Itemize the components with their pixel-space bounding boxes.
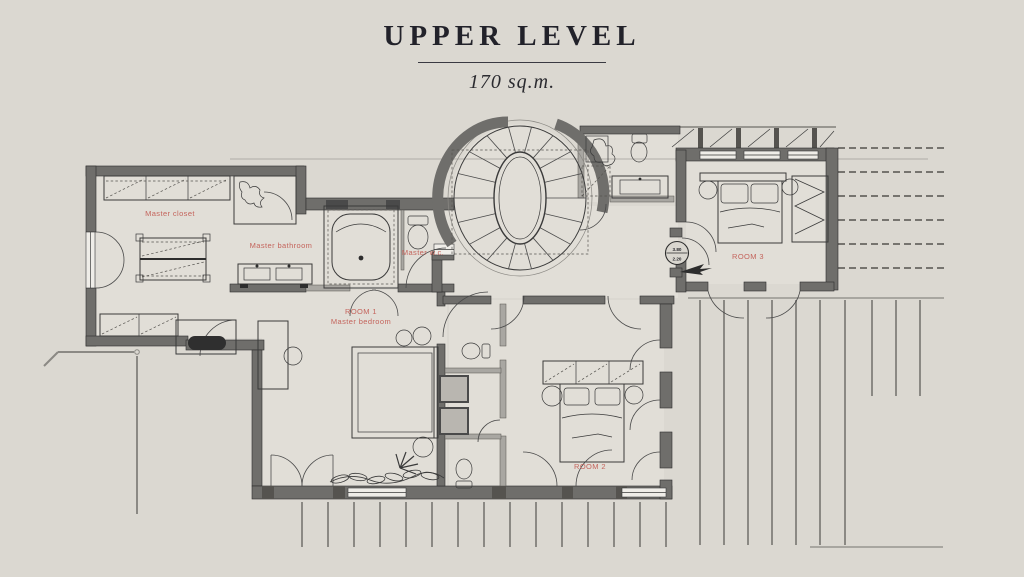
right-roof-dashed-lines: [838, 148, 946, 268]
level-lower-value: 2.20: [673, 256, 682, 261]
label-room1-sub: Master bedroom: [331, 317, 391, 326]
label-room2: ROOM 2: [574, 462, 606, 471]
label-master-bathroom: Master bathroom: [250, 241, 313, 250]
label-master-wc: Master w.c.: [402, 248, 444, 257]
label-room3: ROOM 3: [732, 252, 764, 261]
room3-top-pergola-hatch: [664, 127, 836, 149]
left-terrace-edge: [44, 350, 139, 514]
bottom-pergola-beams: [302, 502, 666, 547]
label-room1: ROOM 1: [345, 307, 377, 316]
right-pergola-beams: [688, 298, 944, 547]
floor-plan-drawing: Master closet Master bathroom Master w.c…: [0, 0, 1024, 577]
level-upper-value: 3.80: [673, 247, 682, 252]
label-master-closet: Master closet: [145, 209, 195, 218]
floor-plan-page: UPPER LEVEL 170 sq.m.: [0, 0, 1024, 577]
